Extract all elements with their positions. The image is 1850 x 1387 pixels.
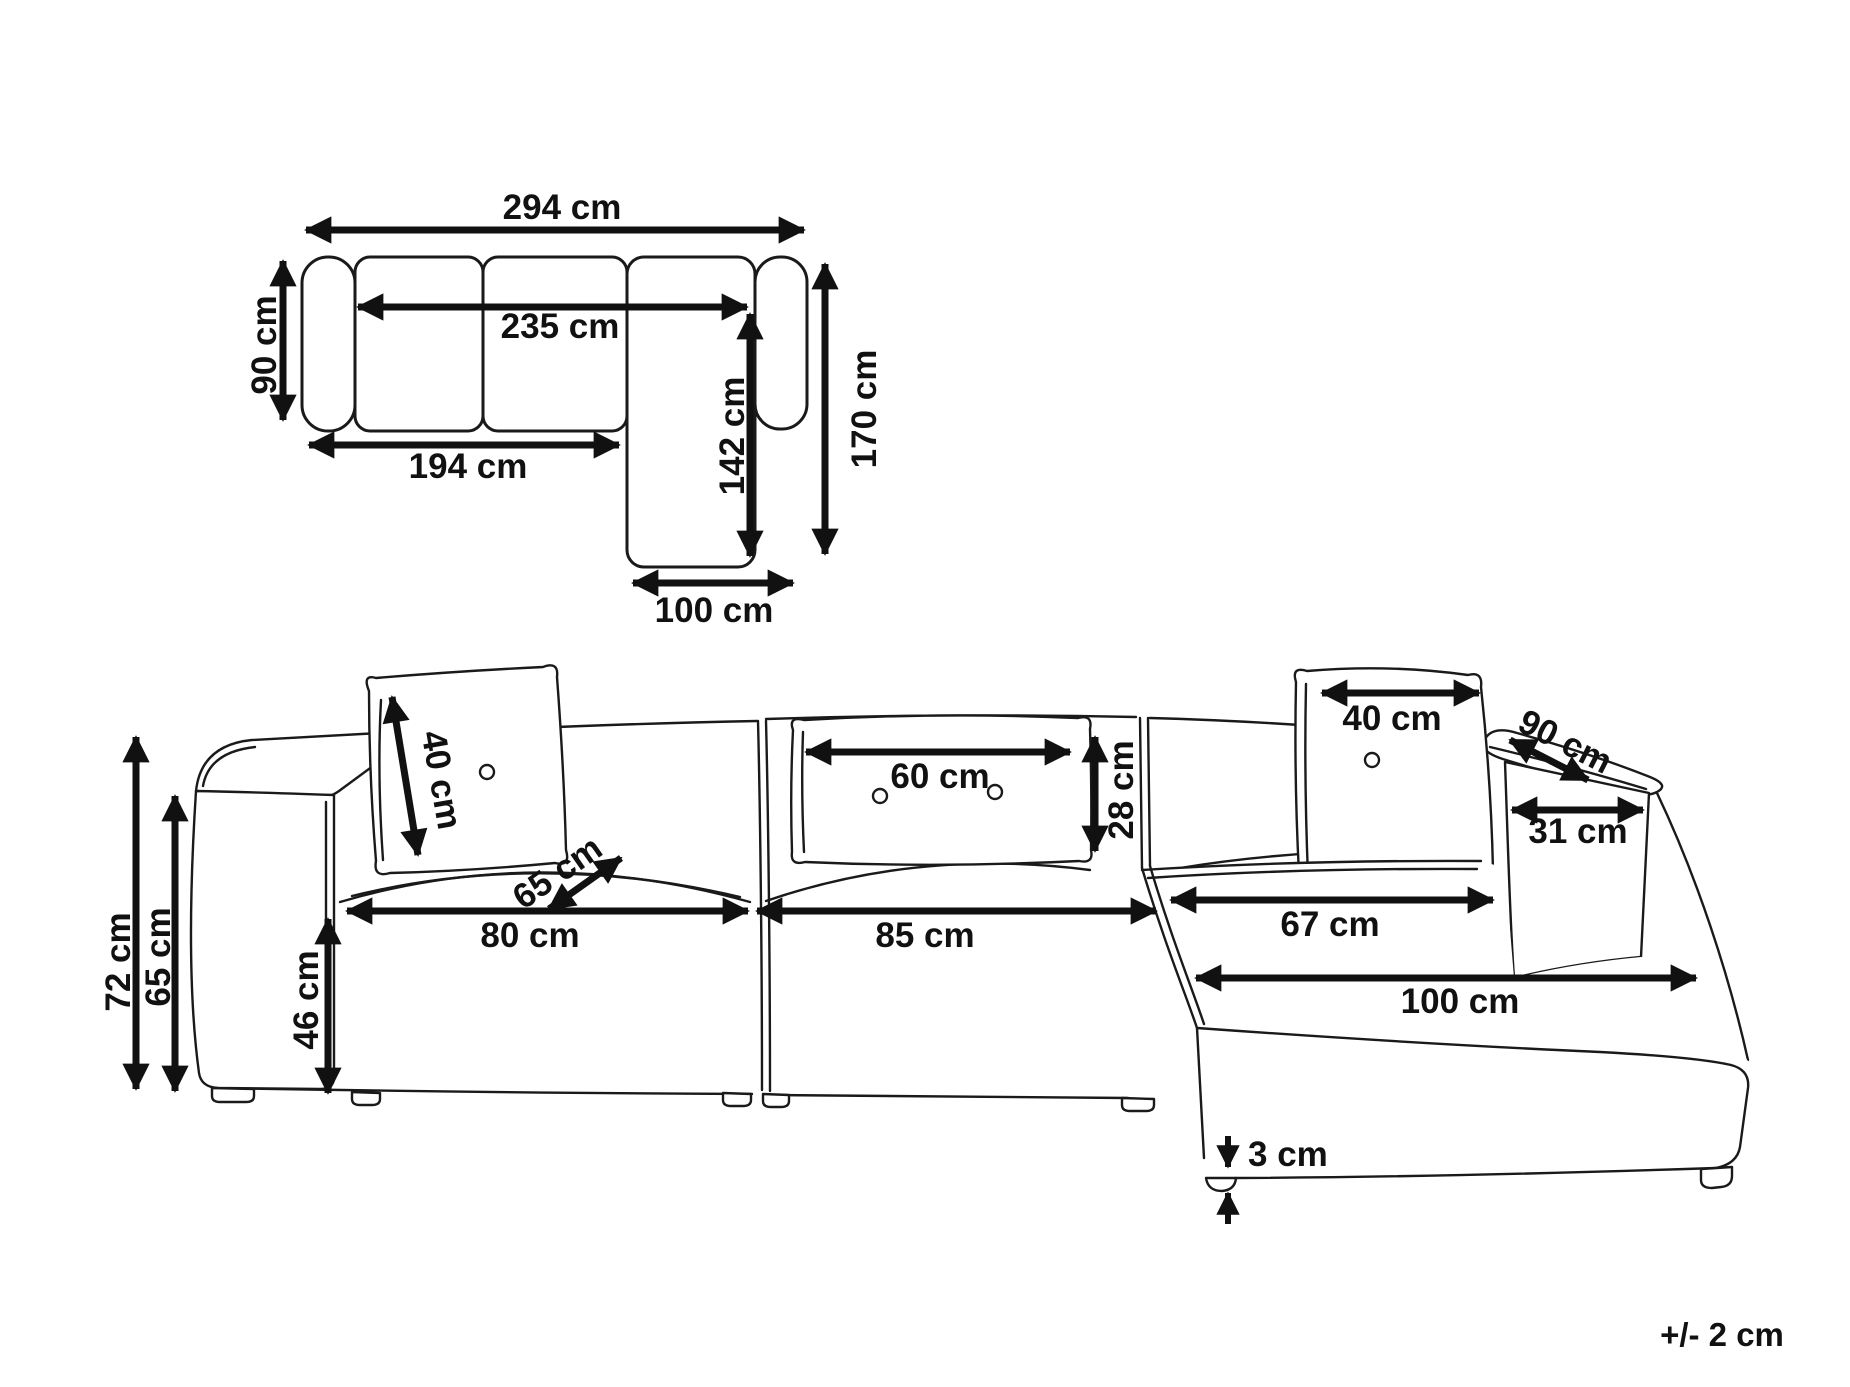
module-seam-left-a [758, 721, 762, 1090]
sofa-leg-center-module-l [763, 1094, 789, 1107]
dim-chaise-seat-width-label: 67 cm [1280, 905, 1379, 944]
dim-armrest-front-width-label: 31 cm [1528, 812, 1627, 851]
dim-center-seat-width-label: 85 cm [875, 916, 974, 955]
sofa-dimensions-diagram: 294 cm 235 cm 90 cm 194 cm 142 cm 170 cm… [0, 0, 1850, 1387]
dim-total-width-label: 294 cm [503, 188, 622, 227]
sofa-leg-left-module-l [352, 1092, 380, 1105]
dim-seat-height-label: 46 cm [287, 950, 326, 1049]
top-view: 294 cm 235 cm 90 cm 194 cm 142 cm 170 cm… [245, 188, 884, 630]
top-view-seat-1 [355, 257, 483, 431]
tolerance-note: +/- 2 cm [1660, 1316, 1784, 1353]
dim-center-cushion-height-label: 28 cm [1102, 740, 1141, 839]
dim-total-height-label: 72 cm [99, 912, 138, 1011]
sofa-leg-armrest [212, 1088, 254, 1102]
top-view-left-armrest [302, 257, 355, 431]
sofa-leg-center-module-r [1122, 1098, 1154, 1111]
dim-chaise-inner-length-label: 142 cm [713, 377, 752, 496]
dim-right-depth-label: 170 cm [845, 350, 884, 469]
top-view-right-armrest [755, 257, 807, 429]
dim-depth-label: 90 cm [245, 295, 284, 394]
dim-chaise-width-label: 100 cm [655, 591, 774, 630]
dim-back-span-label: 235 cm [501, 307, 620, 346]
right-armrest-front [1505, 762, 1649, 978]
diagram-svg: 294 cm 235 cm 90 cm 194 cm 142 cm 170 cm… [0, 0, 1850, 1387]
dim-right-cushion-label: 40 cm [1342, 699, 1441, 738]
dim-leg-height-label: 3 cm [1248, 1135, 1328, 1174]
seat-arc-center [766, 864, 1090, 901]
sofa-leg-left-module-r [723, 1093, 751, 1106]
module-seam-right-b [1148, 718, 1150, 866]
dim-center-cushion-width-label: 60 cm [890, 757, 989, 796]
front-view: 72 cm 65 cm 40 cm 65 cm 80 cm 46 cm 60 c… [99, 665, 1750, 1224]
sofa-leg-chaise-right [1701, 1167, 1732, 1188]
left-pillow [367, 665, 568, 874]
bottom-edge-center [770, 1095, 1128, 1098]
dim-chaise-front-width-label: 100 cm [1401, 982, 1520, 1021]
sofa-leg-chaise-corner [1206, 1178, 1236, 1191]
dim-left-length-label: 194 cm [409, 447, 528, 486]
dim-left-seat-width-label: 80 cm [480, 916, 579, 955]
left-pillow-outline [367, 665, 568, 874]
dim-armrest-height-label: 65 cm [139, 907, 178, 1006]
module-seam-left-b [766, 721, 770, 1091]
